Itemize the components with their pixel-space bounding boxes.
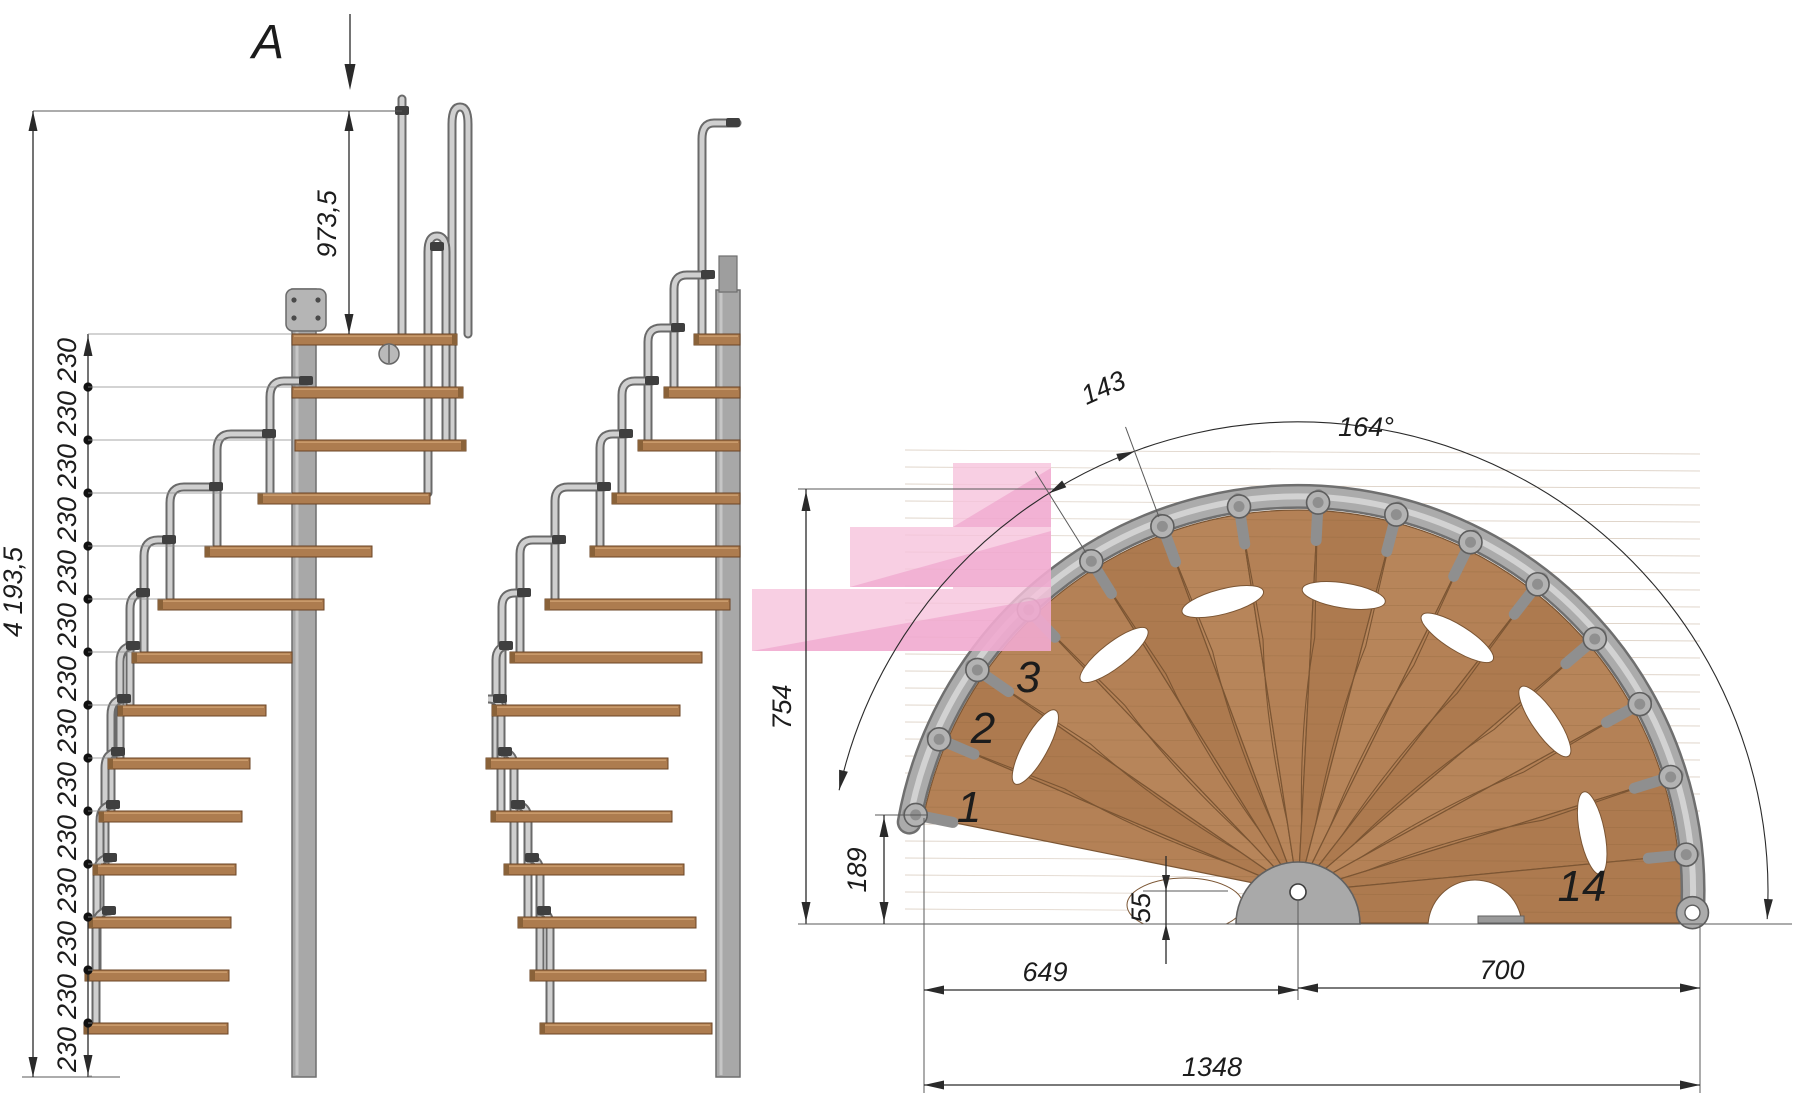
tread-end-cap: [205, 546, 210, 557]
tread-end-cap: [510, 652, 515, 663]
tread-end-cap: [540, 1023, 545, 1034]
dim-step-rise: 230: [52, 815, 82, 861]
handrail-tube-outline: [170, 487, 217, 599]
tube-clamp: [701, 270, 715, 279]
dim-span-right: 700: [1479, 955, 1524, 985]
baluster-knuckle-core: [1589, 633, 1600, 644]
tread-end-cap: [694, 334, 699, 345]
tube-clamp: [671, 323, 685, 332]
rail-end-eye-hole: [1685, 905, 1700, 920]
tube-clamp: [103, 853, 117, 862]
elevation-view-side: [486, 118, 740, 1077]
handrail-tube: [170, 487, 217, 599]
tread-number-14: 14: [1558, 862, 1607, 911]
baluster-knuckle-core: [1465, 537, 1476, 548]
tread-end-cap: [638, 440, 643, 451]
tube-clamp: [619, 429, 633, 438]
tube-clamp: [209, 482, 223, 491]
dim-step-rise: 230: [52, 1027, 82, 1073]
tube-clamp: [262, 429, 276, 438]
bolt-hole: [315, 315, 320, 320]
wall-mount-plate: [286, 289, 326, 331]
dim-fan-angle: 164°: [1338, 412, 1394, 442]
tread-end-cap: [486, 758, 491, 769]
tread-end-cap: [461, 440, 466, 451]
tube-clamp: [552, 535, 566, 544]
pole-top-cap: [719, 256, 737, 292]
tread-end-cap: [664, 387, 669, 398]
tube-clamp: [136, 588, 150, 597]
dim-step-rise: 230: [52, 444, 82, 490]
dim-step-rise: 230: [52, 709, 82, 755]
dimension-arrowhead: [84, 1055, 93, 1075]
dimension-arrowhead: [84, 336, 93, 356]
elevation-view-front: [84, 99, 468, 1077]
dimension-arrowhead: [345, 314, 354, 334]
baluster-knuckle-core: [1234, 501, 1245, 512]
dimension-arrowhead: [1680, 1081, 1700, 1090]
dimension-arrowhead: [802, 902, 811, 922]
tube-clamp: [106, 800, 120, 809]
tread-end-cap: [93, 864, 98, 875]
dimension-arrowhead: [1162, 924, 1170, 940]
tube-clamp: [597, 482, 611, 491]
tread-end-cap: [504, 864, 509, 875]
baluster-knuckle-core: [1391, 509, 1402, 520]
tube-clamp: [111, 747, 125, 756]
tube-clamp: [726, 118, 740, 127]
tread-end-cap: [108, 758, 113, 769]
dimension-arrowhead: [345, 111, 354, 131]
floor-bracket: [1478, 916, 1524, 923]
dim-total-height: 4 193,5: [0, 546, 28, 637]
dim-step-rise: 230: [52, 974, 82, 1020]
pole-center-hole: [1290, 884, 1306, 900]
dimension-arrowhead: [880, 817, 889, 837]
dim-entry-offset: 189: [842, 847, 872, 892]
tube-clamp: [162, 535, 176, 544]
dim-tread-pitch: 143: [1077, 365, 1130, 411]
baluster-knuckle-core: [972, 664, 983, 675]
tread-end-cap: [491, 811, 496, 822]
tread-end-cap: [258, 493, 263, 504]
dim-pole-offset: 55: [1126, 892, 1156, 923]
dim-step-rise: 230: [52, 338, 82, 384]
mount-plate-body: [286, 289, 326, 331]
tread-end-cap: [492, 705, 497, 716]
baluster-flange: [379, 344, 399, 364]
tube-clamp: [299, 376, 313, 385]
dimension-arrowhead: [880, 902, 889, 922]
baluster-knuckle-core: [1086, 556, 1097, 567]
tread-end-cap: [458, 387, 463, 398]
tube-clamp: [126, 641, 140, 650]
bolt-hole: [291, 315, 296, 320]
dim-step-rise: 230: [52, 497, 82, 543]
ext-line-tread-pitch: [1126, 427, 1159, 517]
tube-clamp: [525, 853, 539, 862]
drawing-canvas: 2302302302302302302302302302302302302302…: [0, 0, 1800, 1113]
dimension-arrowhead: [1278, 986, 1298, 995]
dim-step-rise: 230: [52, 656, 82, 702]
technical-drawing-spiral-staircase: 2302302302302302302302302302302302302302…: [0, 0, 1800, 1113]
tread-number-3: 3: [1016, 653, 1041, 702]
tread-end-cap: [530, 970, 535, 981]
tube-clamp: [511, 800, 525, 809]
dimension-arrowhead: [29, 111, 38, 131]
dim-step-rise: 230: [52, 391, 82, 437]
tread-number-2: 2: [970, 704, 995, 753]
baluster-knuckle-core: [1634, 699, 1645, 710]
dimension-arrowhead: [1049, 480, 1066, 493]
tube-clamp: [537, 906, 551, 915]
dimension-arrowhead: [1298, 984, 1318, 993]
dim-step-rise: 230: [52, 603, 82, 649]
tread-end-cap: [118, 705, 123, 716]
bolt-hole: [315, 297, 320, 302]
tube-clamp: [493, 694, 507, 703]
tread-end-cap: [590, 546, 595, 557]
baluster-knuckle-core: [1157, 521, 1168, 532]
dimension-arrowhead: [924, 1081, 944, 1090]
tread-end-cap: [158, 599, 163, 610]
dim-top-flight-height: 973,5: [312, 189, 342, 258]
tube-clamp: [498, 747, 512, 756]
highlight-overlay-steps: [752, 463, 1051, 651]
bolt-hole: [291, 297, 296, 302]
tread-end-cap: [545, 599, 550, 610]
tread-end-cap: [452, 334, 457, 345]
dimension-arrowhead: [29, 1057, 38, 1077]
dim-step-rise: 230: [52, 550, 82, 596]
tube-clamp: [645, 376, 659, 385]
dim-step-rise: 230: [52, 762, 82, 808]
baluster-knuckle-core: [1665, 771, 1676, 782]
baluster-knuckle-core: [1681, 849, 1692, 860]
dim-step-rise: 230: [52, 868, 82, 914]
dimension-arrowhead: [1116, 451, 1134, 461]
tread-number-1: 1: [957, 783, 981, 832]
dim-span-left: 649: [1022, 957, 1067, 987]
dimension-arrowhead: [1680, 984, 1700, 993]
dimension-arrowhead: [802, 491, 811, 511]
tube-clamp: [117, 694, 131, 703]
tube-clamp: [499, 641, 513, 650]
dim-step-rise: 230: [52, 921, 82, 967]
dim-fan-height: 754: [767, 684, 797, 729]
tube-clamp: [102, 906, 116, 915]
baluster-knuckle-core: [934, 734, 945, 745]
dim-total-span: 1348: [1182, 1052, 1242, 1082]
tread-end-cap: [518, 917, 523, 928]
dimension-arrowhead: [1764, 899, 1773, 919]
tread-end-cap: [132, 652, 137, 663]
section-arrowhead: [345, 64, 356, 90]
baluster-knuckle-core: [1313, 497, 1324, 508]
baluster-knuckle-core: [1532, 579, 1543, 590]
dimension-arrowhead: [924, 986, 944, 995]
handrail-tube-outline: [217, 434, 270, 546]
handrail-tube: [217, 434, 270, 546]
tube-clamp: [517, 588, 531, 597]
dimension-arrowhead: [839, 770, 848, 790]
handrail-tube-outline: [428, 236, 446, 493]
tread-end-cap: [612, 493, 617, 504]
section-arrow-label: A: [249, 16, 284, 69]
tread-end-cap: [99, 811, 104, 822]
grain-line: [905, 450, 1700, 454]
tube-clamp: [430, 242, 444, 251]
